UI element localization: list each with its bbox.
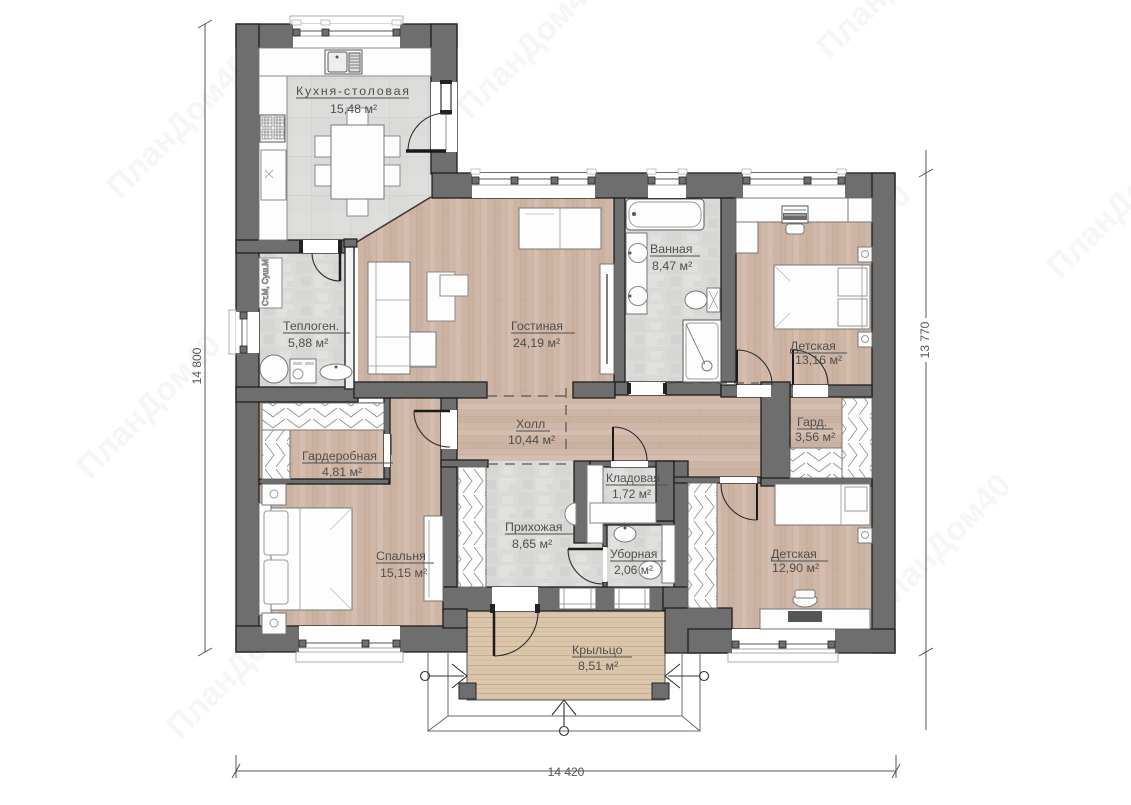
svg-text:Теплоген.: Теплоген. bbox=[283, 319, 339, 333]
svg-text:15,15 м²: 15,15 м² bbox=[380, 566, 427, 580]
svg-text:24,19 м²: 24,19 м² bbox=[513, 336, 560, 350]
svg-text:Крыльцо: Крыльцо bbox=[572, 643, 623, 657]
svg-text:13 770: 13 770 bbox=[918, 321, 932, 358]
svg-text:Гард.: Гард. bbox=[797, 415, 827, 429]
svg-text:8,65 м²: 8,65 м² bbox=[512, 537, 552, 551]
svg-text:Спальня: Спальня bbox=[376, 549, 426, 563]
svg-text:13,16 м²: 13,16 м² bbox=[795, 353, 842, 367]
svg-text:1,72 м²: 1,72 м² bbox=[612, 487, 651, 501]
svg-text:14 420: 14 420 bbox=[548, 765, 585, 779]
svg-text:Уборная: Уборная bbox=[610, 547, 657, 561]
svg-text:Детская: Детская bbox=[790, 339, 836, 353]
svg-text:Гостиная: Гостиная bbox=[511, 319, 563, 333]
svg-text:8,47 м²: 8,47 м² bbox=[652, 259, 692, 273]
svg-text:5,88 м²: 5,88 м² bbox=[288, 336, 328, 350]
svg-text:12,90 м²: 12,90 м² bbox=[772, 561, 819, 575]
svg-text:15,48 м²: 15,48 м² bbox=[330, 102, 377, 116]
svg-text:Холл: Холл bbox=[516, 417, 545, 431]
svg-text:Гардеробная: Гардеробная bbox=[302, 449, 377, 463]
svg-text:3,56 м²: 3,56 м² bbox=[795, 430, 835, 444]
svg-text:Ст.М, Суш.М: Ст.М, Суш.М bbox=[261, 259, 270, 306]
svg-text:8,51 м²: 8,51 м² bbox=[578, 659, 618, 673]
svg-text:Кладовая: Кладовая bbox=[606, 471, 660, 485]
svg-text:4,81 м²: 4,81 м² bbox=[322, 465, 362, 479]
svg-text:Детская: Детская bbox=[771, 547, 817, 561]
svg-text:2,06 м²: 2,06 м² bbox=[614, 563, 653, 577]
svg-text:14 800: 14 800 bbox=[190, 347, 204, 384]
svg-text:Прихожая: Прихожая bbox=[505, 520, 562, 534]
svg-text:10,44 м²: 10,44 м² bbox=[508, 433, 555, 447]
svg-text:Ванная: Ванная bbox=[650, 242, 692, 256]
